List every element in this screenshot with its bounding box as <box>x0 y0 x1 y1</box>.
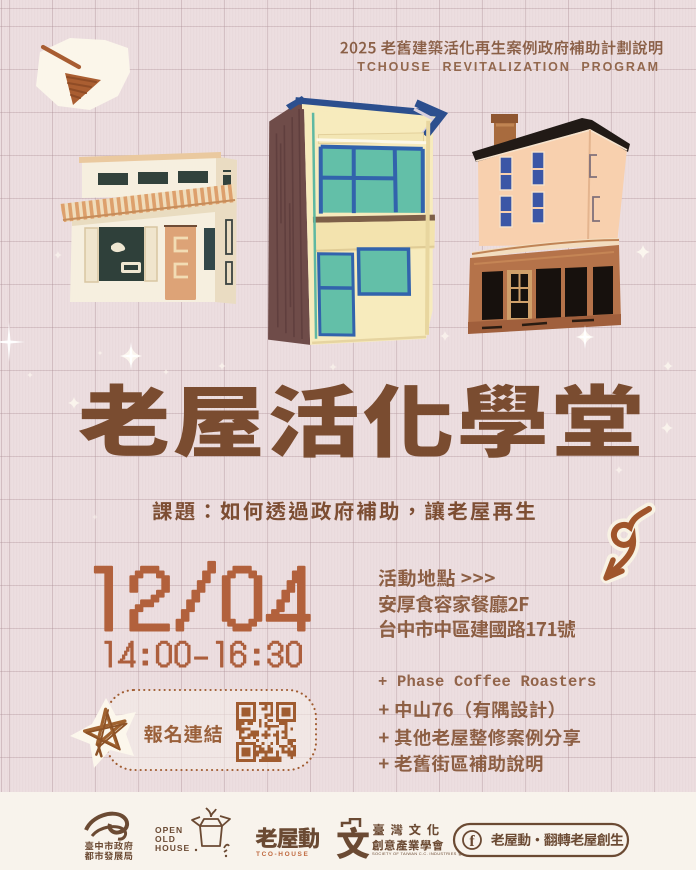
svg-text:f: f <box>469 833 475 850</box>
